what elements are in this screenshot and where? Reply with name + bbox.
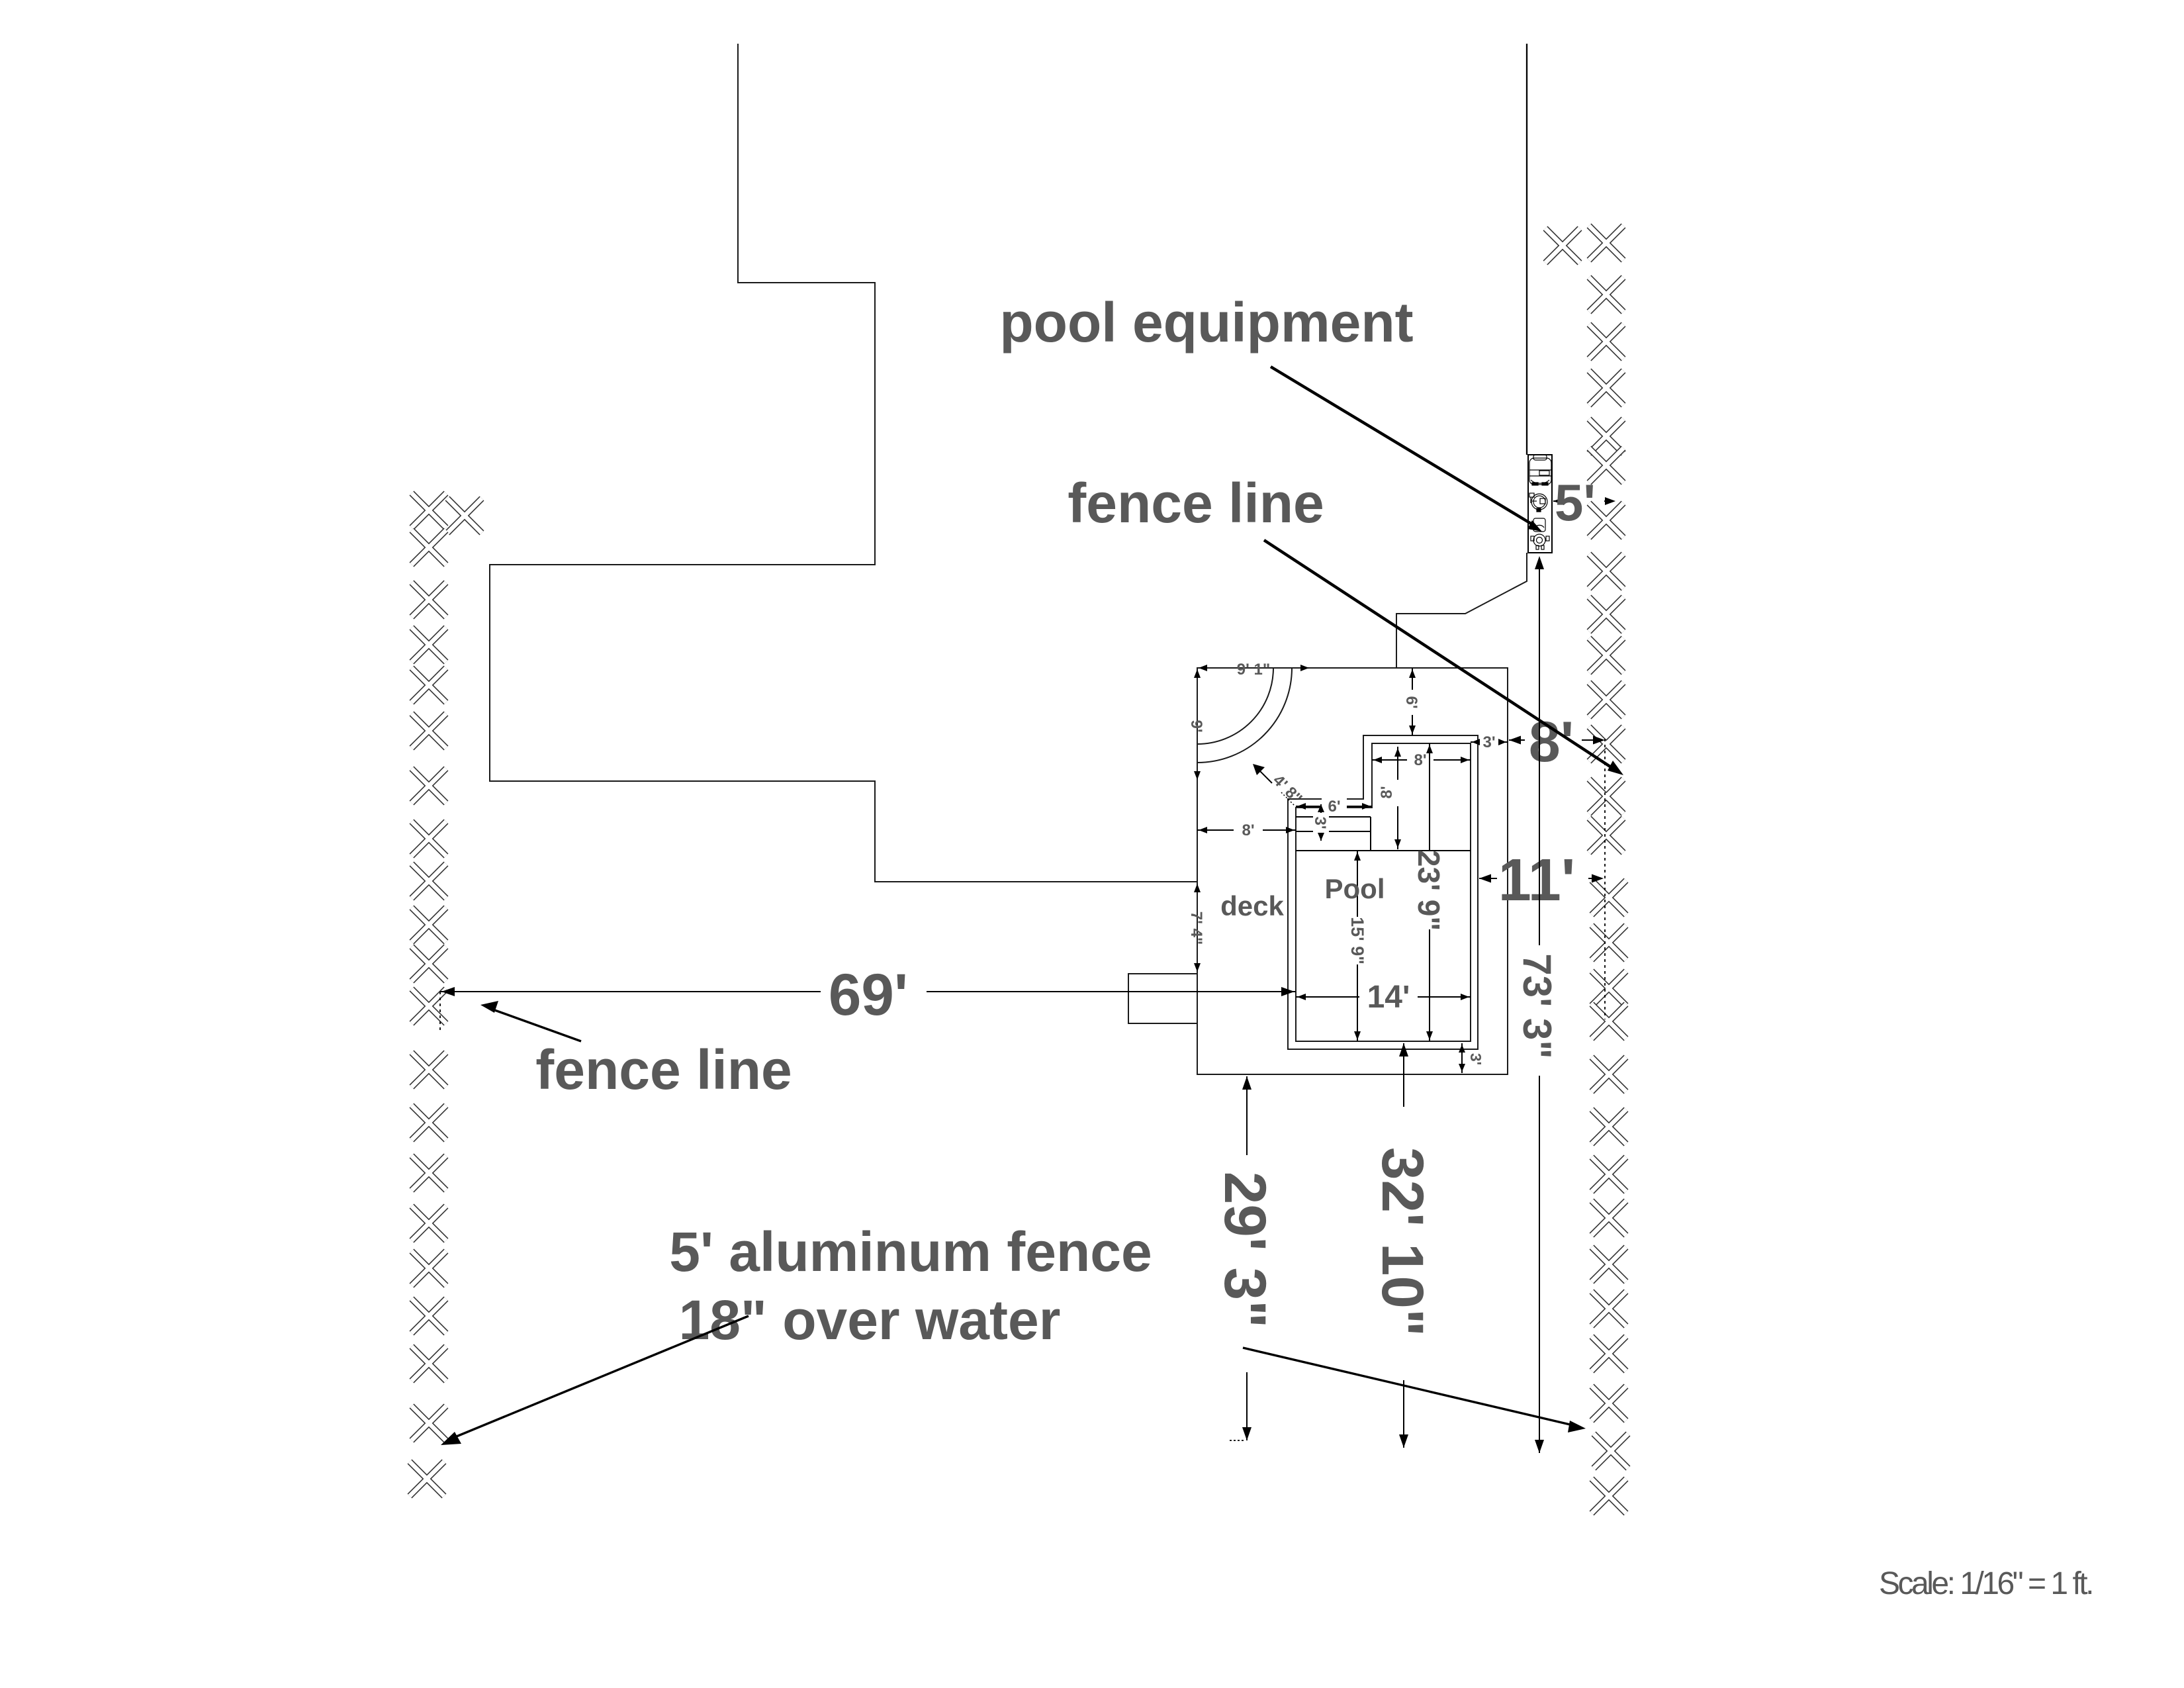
svg-text:Scale: 1/16" = 1 ft.: Scale: 1/16" = 1 ft. [1879, 1566, 2092, 1601]
svg-text:8': 8' [1378, 786, 1396, 798]
svg-text:14': 14' [1367, 980, 1410, 1015]
svg-text:3': 3' [1482, 733, 1495, 751]
svg-text:6': 6' [1402, 696, 1420, 708]
svg-text:73' 3": 73' 3" [1515, 953, 1559, 1059]
svg-text:pool equipment: pool equipment [999, 291, 1413, 353]
svg-text:23' 9": 23' 9" [1412, 850, 1446, 931]
svg-text:5': 5' [1555, 473, 1596, 532]
svg-text:deck: deck [1220, 890, 1284, 921]
svg-text:15' 9": 15' 9" [1347, 917, 1367, 964]
svg-text:9': 9' [1187, 720, 1205, 732]
svg-text:3': 3' [1311, 816, 1329, 829]
svg-text:32' 10": 32' 10" [1370, 1147, 1436, 1336]
svg-text:8': 8' [1242, 821, 1254, 839]
svg-text:Pool: Pool [1325, 873, 1385, 904]
svg-text:9' 1": 9' 1" [1237, 661, 1270, 679]
svg-text:29' 3": 29' 3" [1212, 1172, 1279, 1329]
svg-text:8': 8' [1414, 751, 1426, 769]
svg-text:fence line: fence line [535, 1039, 792, 1101]
svg-text:fence line: fence line [1068, 472, 1324, 534]
svg-text:11': 11' [1498, 847, 1576, 914]
svg-text:5' aluminum fence: 5' aluminum fence [669, 1221, 1152, 1283]
svg-text:6': 6' [1328, 798, 1340, 816]
svg-text:8': 8' [1529, 710, 1574, 774]
svg-text:7' 4": 7' 4" [1187, 912, 1205, 945]
svg-text:69': 69' [829, 961, 908, 1027]
svg-text:3': 3' [1467, 1053, 1484, 1065]
